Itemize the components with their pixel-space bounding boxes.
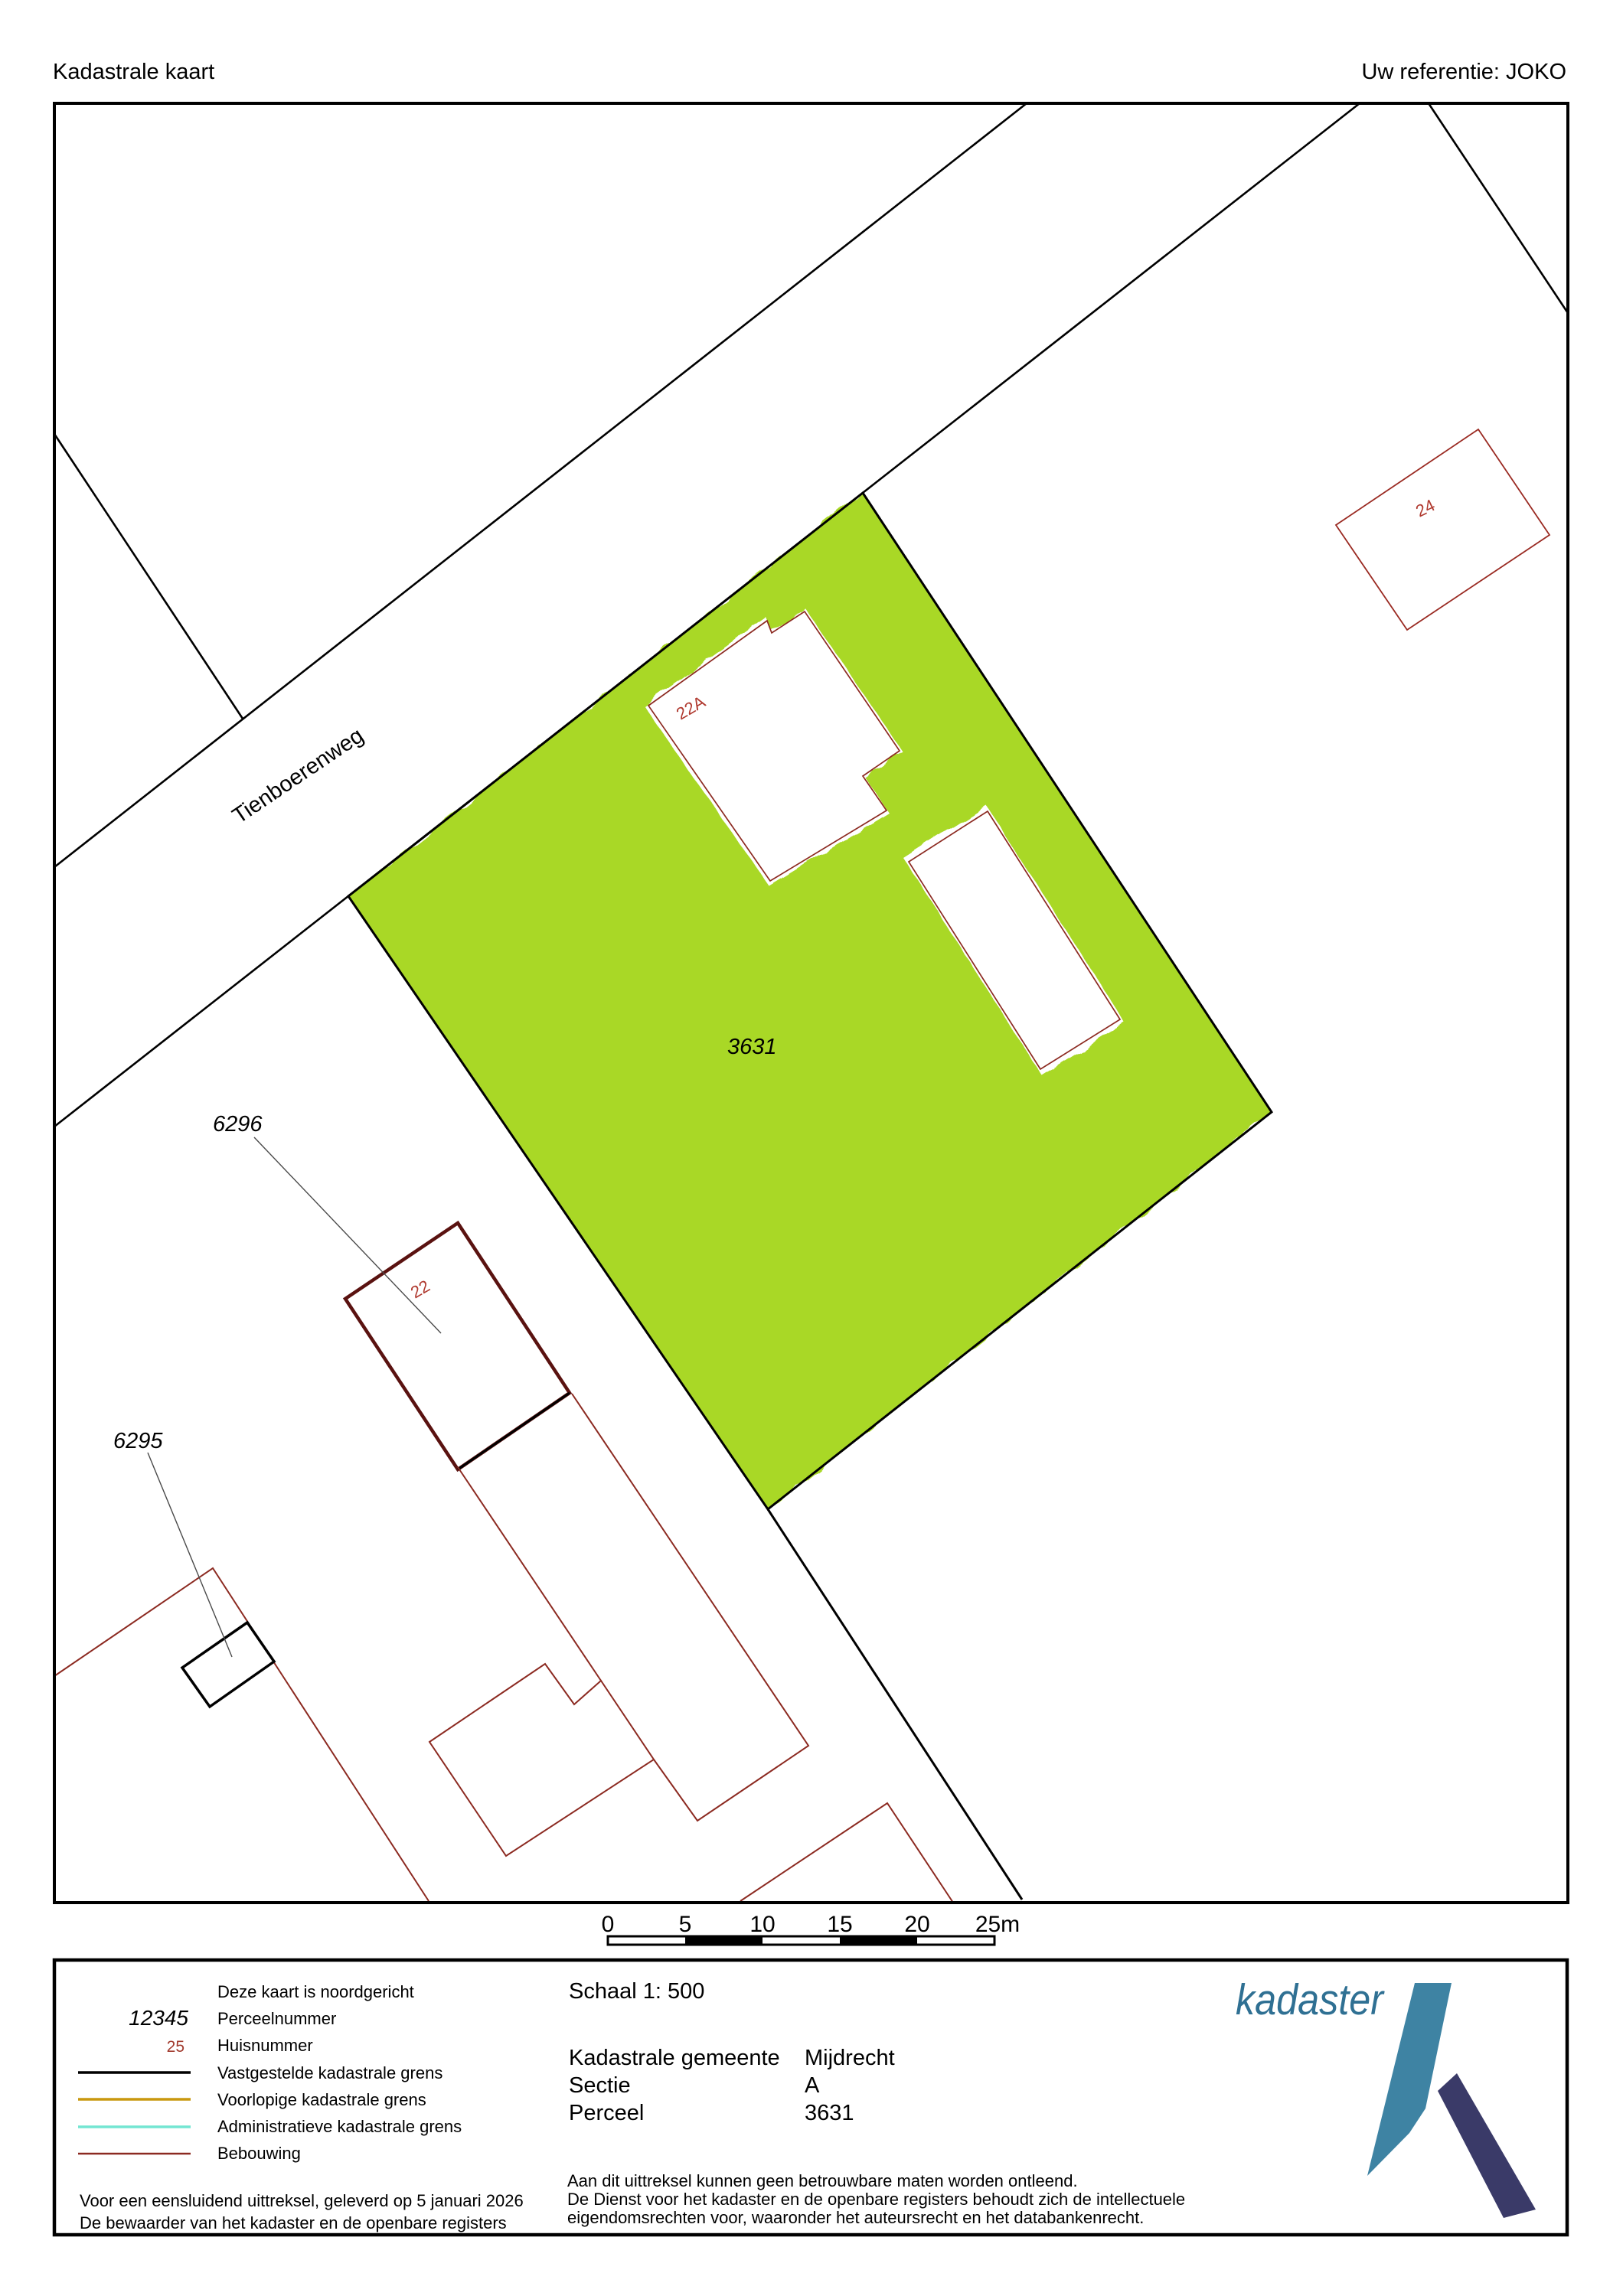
svg-text:Kadastrale gemeente: Kadastrale gemeente bbox=[569, 2046, 780, 2070]
svg-text:Huisnummer: Huisnummer bbox=[217, 2036, 313, 2055]
svg-text:15: 15 bbox=[827, 1912, 852, 1937]
svg-text:25m: 25m bbox=[975, 1912, 1020, 1937]
svg-text:Perceel: Perceel bbox=[569, 2101, 644, 2125]
svg-text:Perceelnummer: Perceelnummer bbox=[217, 2009, 336, 2028]
svg-text:12345: 12345 bbox=[129, 2006, 188, 2030]
svg-text:Sectie: Sectie bbox=[569, 2073, 631, 2098]
svg-text:Voorlopige kadastrale grens: Voorlopige kadastrale grens bbox=[217, 2090, 426, 2109]
svg-text:Uw referentie: JOKO: Uw referentie: JOKO bbox=[1361, 60, 1566, 84]
svg-text:10: 10 bbox=[749, 1912, 775, 1937]
svg-text:Deze kaart is noordgericht: Deze kaart is noordgericht bbox=[217, 1982, 414, 2001]
svg-text:3631: 3631 bbox=[727, 1035, 777, 1059]
svg-text:A: A bbox=[805, 2073, 820, 2098]
svg-text:Bebouwing: Bebouwing bbox=[217, 2144, 301, 2163]
svg-text:Schaal 1: 500: Schaal 1: 500 bbox=[569, 1979, 704, 2004]
svg-text:kadaster: kadaster bbox=[1236, 1975, 1385, 2024]
svg-text:De bewaarder van het kadaster: De bewaarder van het kadaster en de open… bbox=[80, 2213, 507, 2232]
svg-text:Aan dit uittreksel kunnen geen: Aan dit uittreksel kunnen geen betrouwba… bbox=[567, 2171, 1078, 2190]
svg-text:0: 0 bbox=[602, 1912, 615, 1937]
svg-text:20: 20 bbox=[904, 1912, 929, 1937]
svg-text:6296: 6296 bbox=[213, 1112, 263, 1137]
svg-text:Voor een eensluidend uittrekse: Voor een eensluidend uittreksel, gelever… bbox=[80, 2191, 524, 2210]
svg-text:eigendomsrechten voor, waarond: eigendomsrechten voor, waaronder het aut… bbox=[567, 2208, 1144, 2227]
svg-text:Vastgestelde kadastrale grens: Vastgestelde kadastrale grens bbox=[217, 2063, 442, 2082]
svg-text:5: 5 bbox=[679, 1912, 692, 1937]
svg-text:3631: 3631 bbox=[805, 2101, 854, 2125]
svg-text:Administratieve kadastrale gre: Administratieve kadastrale grens bbox=[217, 2117, 462, 2136]
svg-text:Mijdrecht: Mijdrecht bbox=[805, 2046, 895, 2070]
svg-text:Kadastrale kaart: Kadastrale kaart bbox=[53, 60, 214, 84]
svg-text:6295: 6295 bbox=[113, 1429, 163, 1453]
svg-text:De Dienst voor het kadaster en: De Dienst voor het kadaster en de openba… bbox=[567, 2190, 1185, 2209]
svg-text:25: 25 bbox=[167, 2038, 185, 2056]
